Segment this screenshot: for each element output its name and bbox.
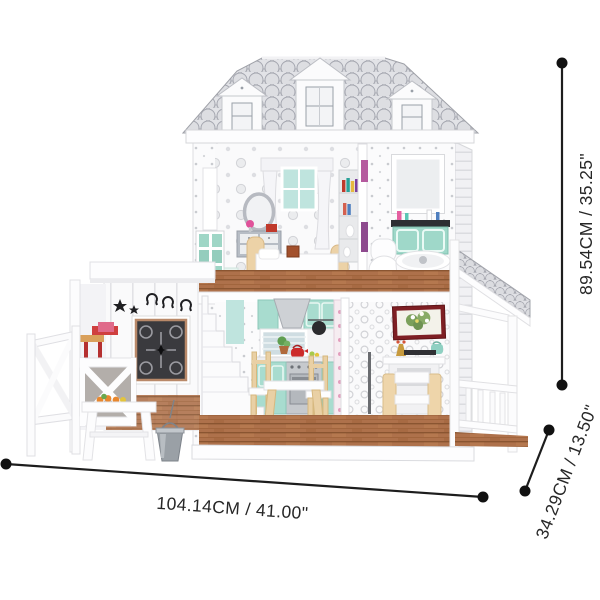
product-dimension-photo: 104.14CM / 41.00" 89.54CM / 35.25" 34.29…	[0, 0, 600, 600]
width-label: 104.14CM / 41.00"	[156, 493, 309, 524]
red-box	[266, 224, 277, 232]
paddock-fence	[27, 326, 80, 456]
framed-picture	[392, 305, 445, 340]
dimension-endpoint-dot	[1, 459, 12, 470]
height-dimension: 89.54CM / 35.25"	[557, 58, 597, 391]
depth-label: 34.29CM / 13.50"	[532, 402, 600, 542]
partition-floral	[334, 300, 341, 422]
stable-roof	[90, 262, 215, 279]
roof	[183, 58, 478, 143]
eave-fascia	[186, 130, 474, 143]
dimension-endpoint-dot	[544, 425, 555, 436]
radio	[287, 246, 299, 257]
dimension-endpoint-dot	[478, 492, 489, 503]
stable	[27, 262, 215, 461]
frying-pan	[312, 321, 326, 335]
base-platform	[192, 445, 474, 461]
downstairs-partition	[341, 298, 349, 422]
depth-dimension: 34.29CM / 13.50"	[520, 402, 600, 542]
dimension-endpoint-dot	[520, 486, 531, 497]
towel-purple	[361, 160, 368, 182]
porch-post-left	[450, 240, 459, 452]
fire-poker	[368, 352, 371, 414]
dollhouse-scene: 104.14CM / 41.00" 89.54CM / 35.25" 34.29…	[0, 0, 600, 600]
ground-floor-wood	[199, 415, 455, 448]
second-floor	[196, 144, 458, 304]
second-floor-wood	[199, 270, 455, 293]
dimension-endpoint-dot	[557, 58, 568, 69]
grille-window	[132, 316, 190, 384]
dimension-endpoint-dot	[557, 380, 568, 391]
stable-roof-shadow	[90, 279, 215, 283]
side-window-opening	[203, 168, 217, 230]
width-dimension: 104.14CM / 41.00"	[1, 459, 489, 524]
towel-magenta	[361, 222, 368, 252]
height-label: 89.54CM / 35.25"	[576, 153, 596, 295]
dollhouse-illustration	[27, 58, 530, 461]
pink-lamp	[246, 220, 254, 228]
bathroom-mirror	[394, 157, 442, 211]
ground-floor	[199, 296, 455, 448]
